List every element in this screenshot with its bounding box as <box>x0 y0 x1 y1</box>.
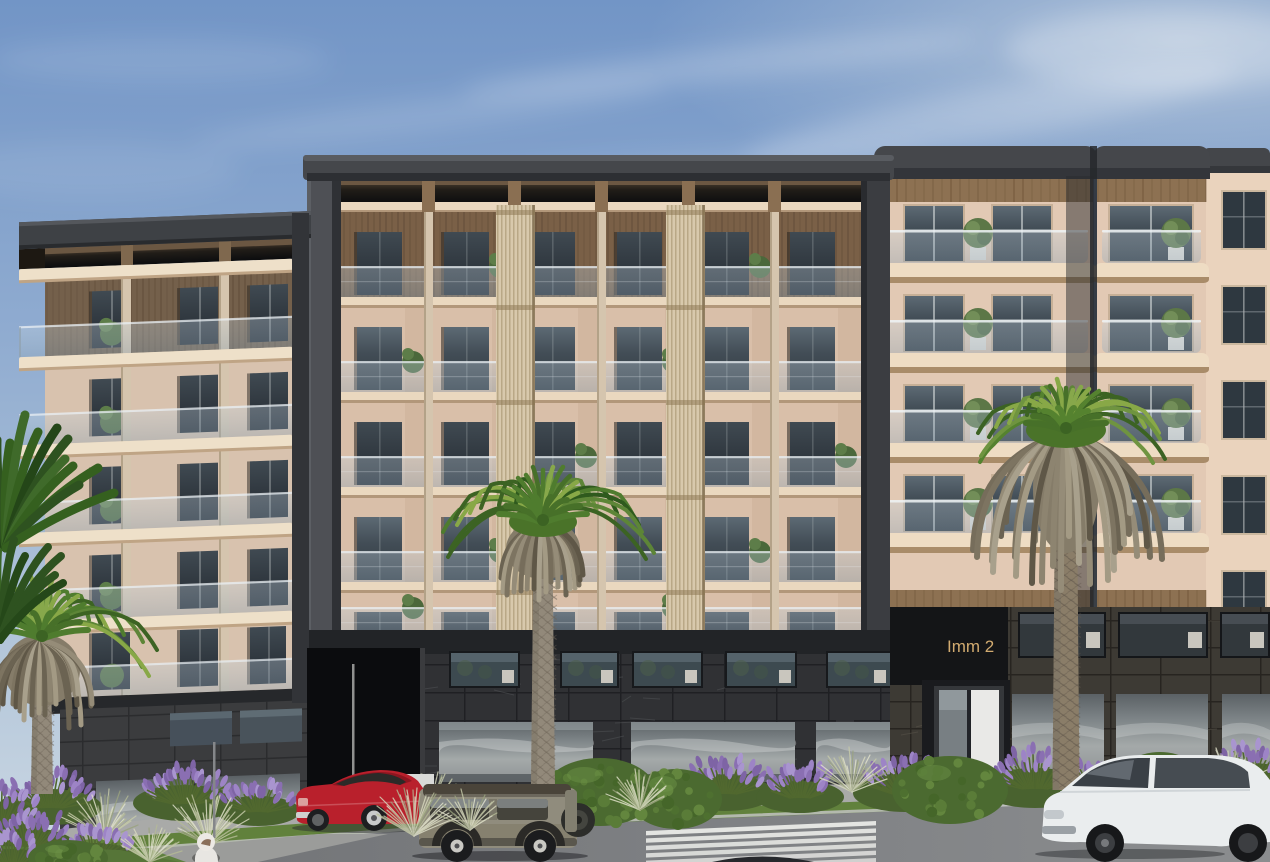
svg-text:Imm 2: Imm 2 <box>947 637 994 656</box>
